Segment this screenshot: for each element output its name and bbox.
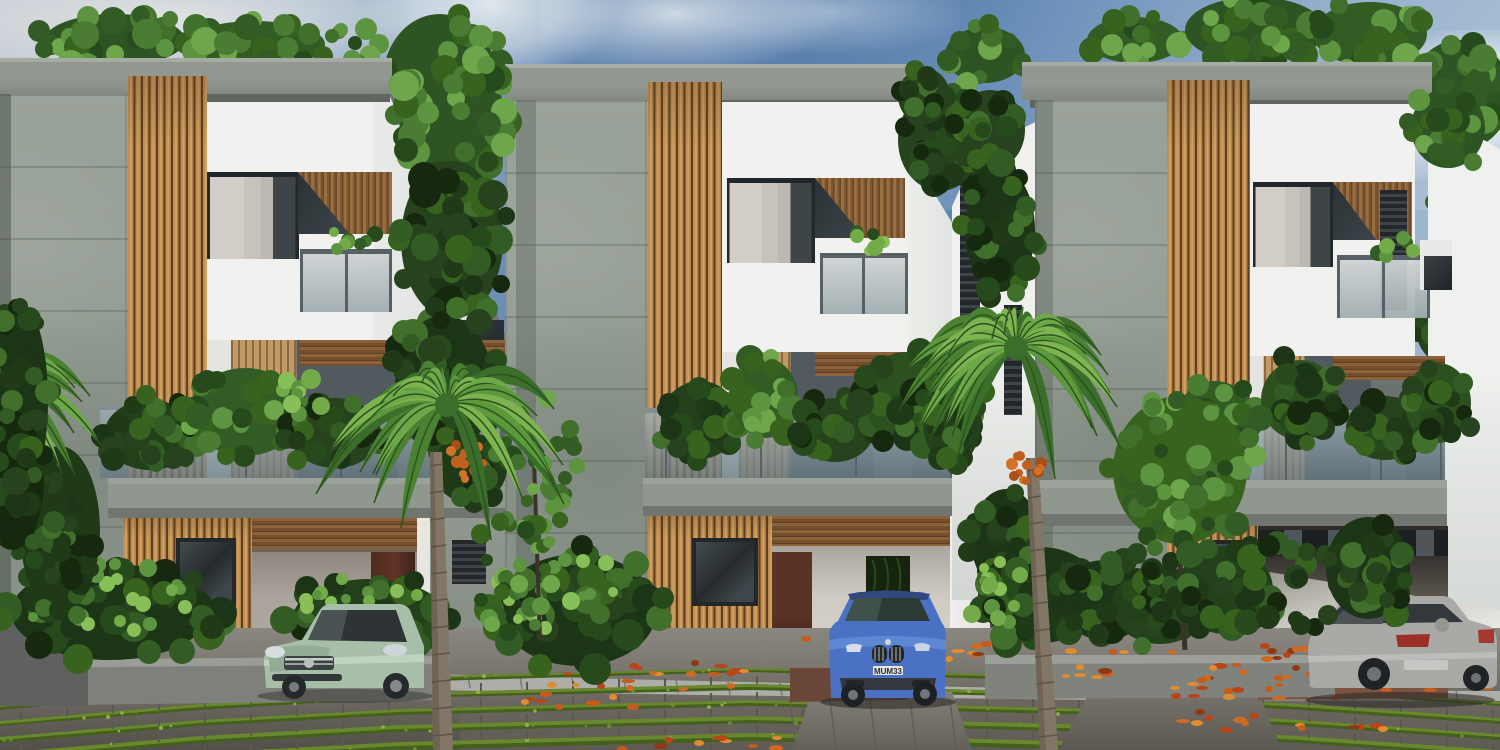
svg-text:MUM33: MUM33 — [874, 667, 903, 676]
